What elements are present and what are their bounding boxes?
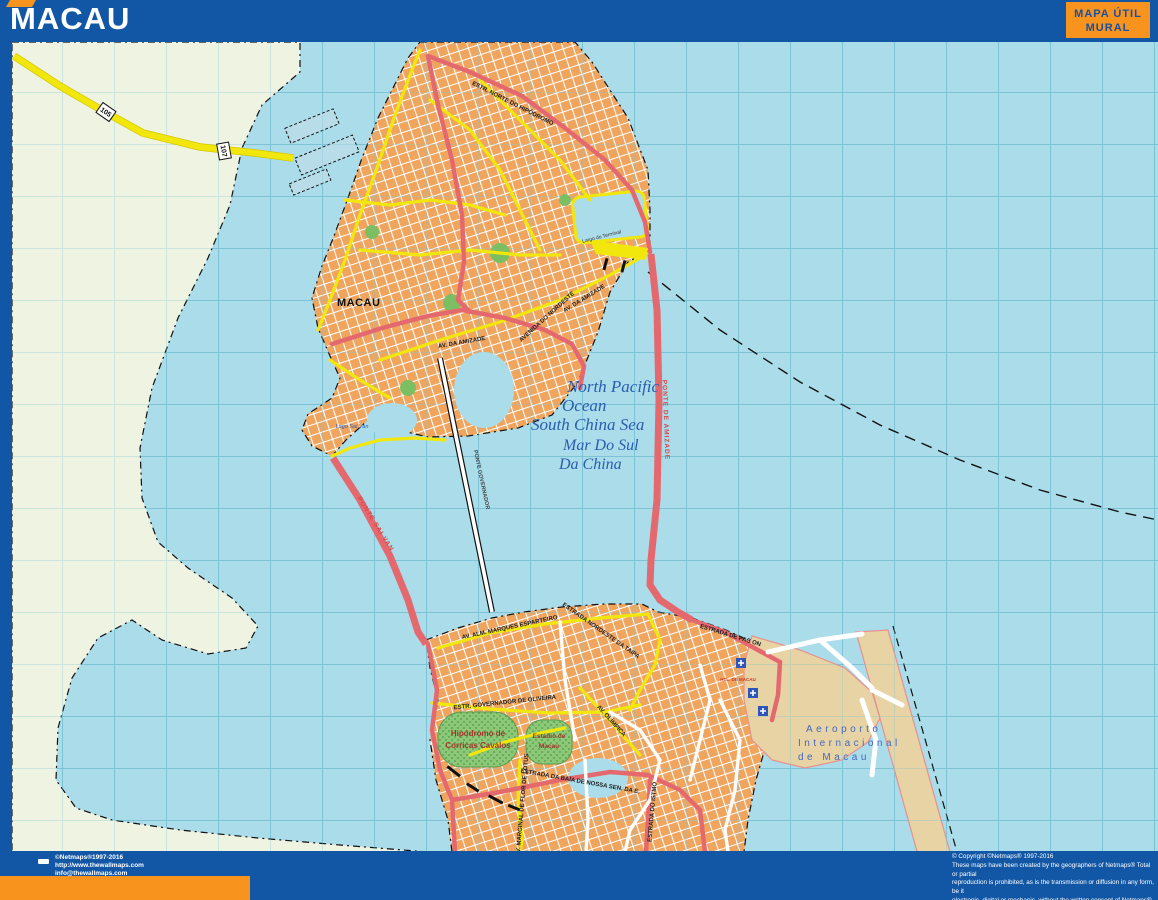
brand-line-1: MAPA ÚTIL <box>1066 7 1150 21</box>
ocean-label-ocean: Ocean <box>562 396 606 415</box>
brand-badge: MAPA ÚTIL MURAL <box>1066 2 1150 38</box>
place-label-lago-sai-van: Lago Sai Van <box>336 424 369 430</box>
place-label-estadio-1: Estádio de <box>533 733 566 740</box>
legal-line: These maps have been created by the geog… <box>952 862 1156 880</box>
city-label-macau: MACAU <box>337 297 380 309</box>
left-border-stripe <box>0 42 12 851</box>
wall-map-poster: 105 107 MACAU North Pacific Ocean South … <box>0 0 1158 900</box>
place-label-airport-1: Aeroporto <box>806 724 881 735</box>
website-line: http://www.thewallmaps.com <box>55 862 144 870</box>
header-bar: MACAU MAPA ÚTIL MURAL <box>0 0 1158 42</box>
brand-line-2: MURAL <box>1066 21 1150 35</box>
nam-van-lake <box>454 352 514 428</box>
ocean-label-south-china-sea: South China Sea <box>531 415 644 434</box>
netmaps-logo-icon <box>38 857 49 864</box>
legal-line: © Copyright ©Netmaps® 1997-2016 <box>952 853 1156 862</box>
place-label-airport-2: Internacional <box>798 738 901 749</box>
page-title: MACAU <box>10 1 130 37</box>
place-label-airport-3: de Macau <box>798 752 870 763</box>
place-label-hipodromo-1: Hipódromo de <box>451 729 506 738</box>
place-label-hipodromo-2: Corricas Cavalos <box>445 741 511 750</box>
hippodrome-area <box>438 712 518 767</box>
macau-map-svg: 105 107 MACAU North Pacific Ocean South … <box>0 42 1158 851</box>
route-shield: 107 <box>217 142 232 160</box>
footer-left-credits: ©Netmaps®1997-2016 http://www.thewallmap… <box>55 854 144 878</box>
sai-van-lake <box>367 403 417 437</box>
place-label-hotel-macau: HTL. DE MACAU <box>720 677 756 682</box>
place-label-estadio-2: Macau <box>539 743 559 750</box>
ocean-label-da-china: Da China <box>558 456 622 473</box>
legal-line: reproduction is prohibited, as is the tr… <box>952 879 1156 897</box>
copyright-line: ©Netmaps®1997-2016 <box>55 854 144 862</box>
footer-right-legal: © Copyright ©Netmaps® 1997-2016 These ma… <box>952 853 1156 900</box>
map-canvas: 105 107 MACAU North Pacific Ocean South … <box>0 42 1158 851</box>
footer-bar: ©Netmaps®1997-2016 http://www.thewallmap… <box>0 851 1158 900</box>
footer-orange-strip <box>0 876 250 900</box>
ocean-label-north-pacific: North Pacific <box>566 377 660 396</box>
ocean-label-mar-do-sul: Mar Do Sul <box>562 437 639 454</box>
